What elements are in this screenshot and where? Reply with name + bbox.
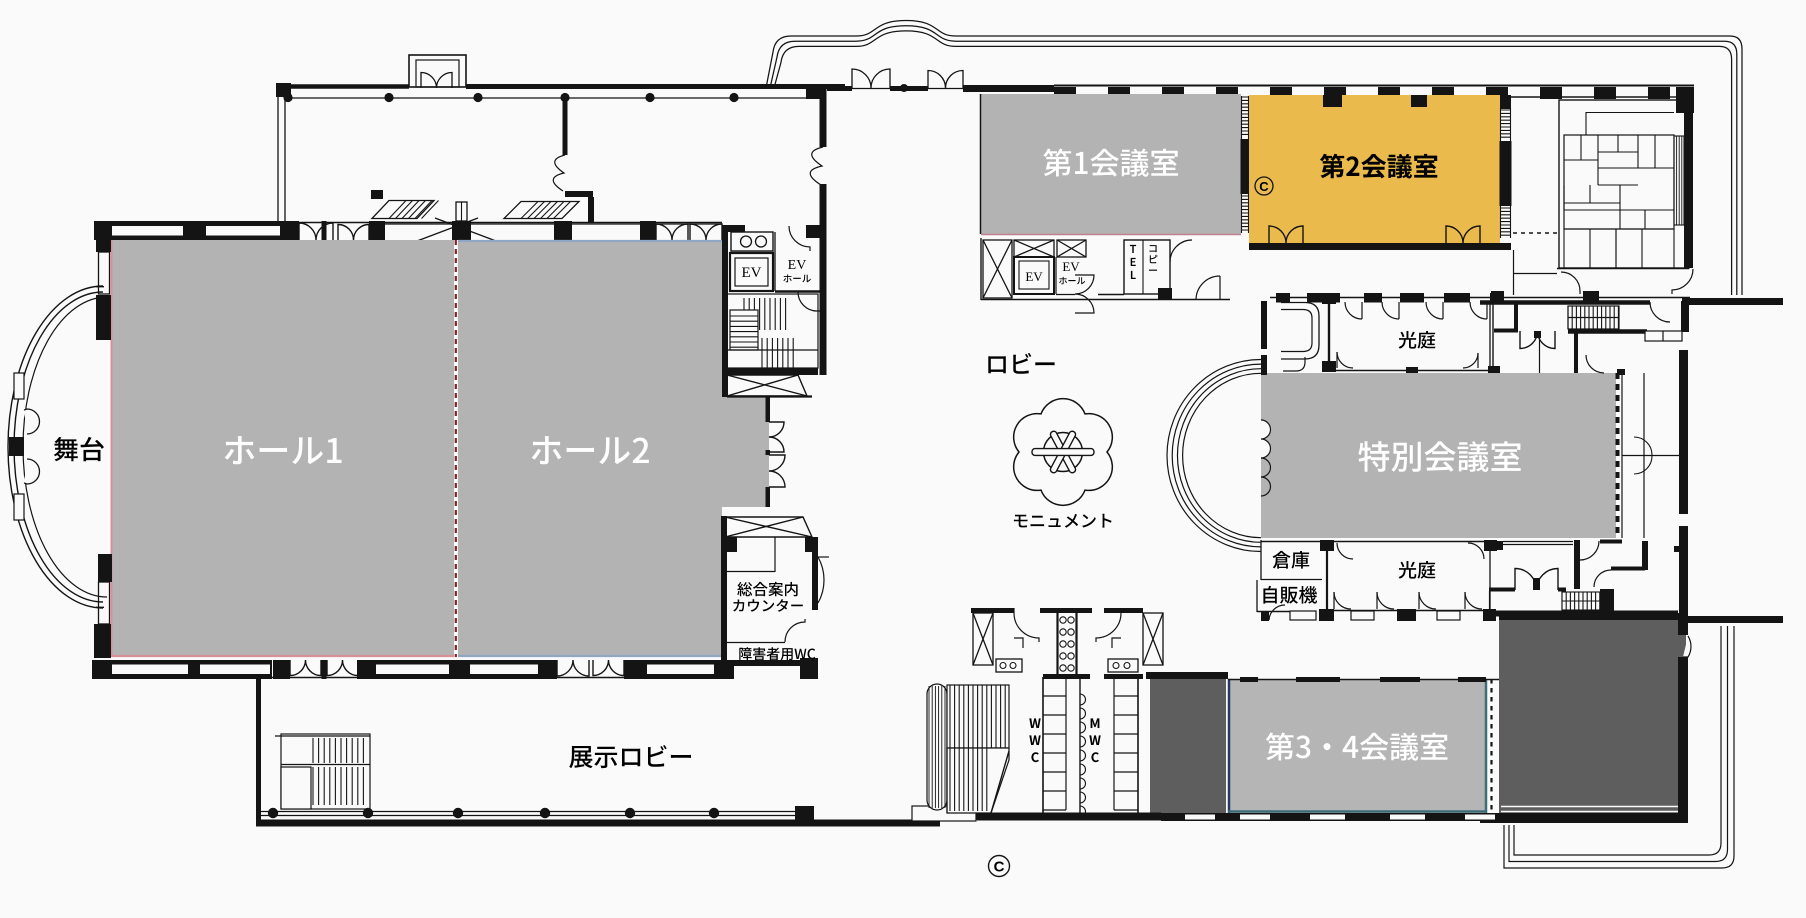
svg-text:C: C — [994, 859, 1005, 876]
svg-text:EV: EV — [1062, 259, 1080, 274]
svg-text:EV: EV — [742, 265, 762, 281]
svg-text:EV: EV — [788, 258, 807, 273]
svg-text:C: C — [1259, 179, 1269, 194]
svg-text:EV: EV — [1025, 269, 1043, 284]
